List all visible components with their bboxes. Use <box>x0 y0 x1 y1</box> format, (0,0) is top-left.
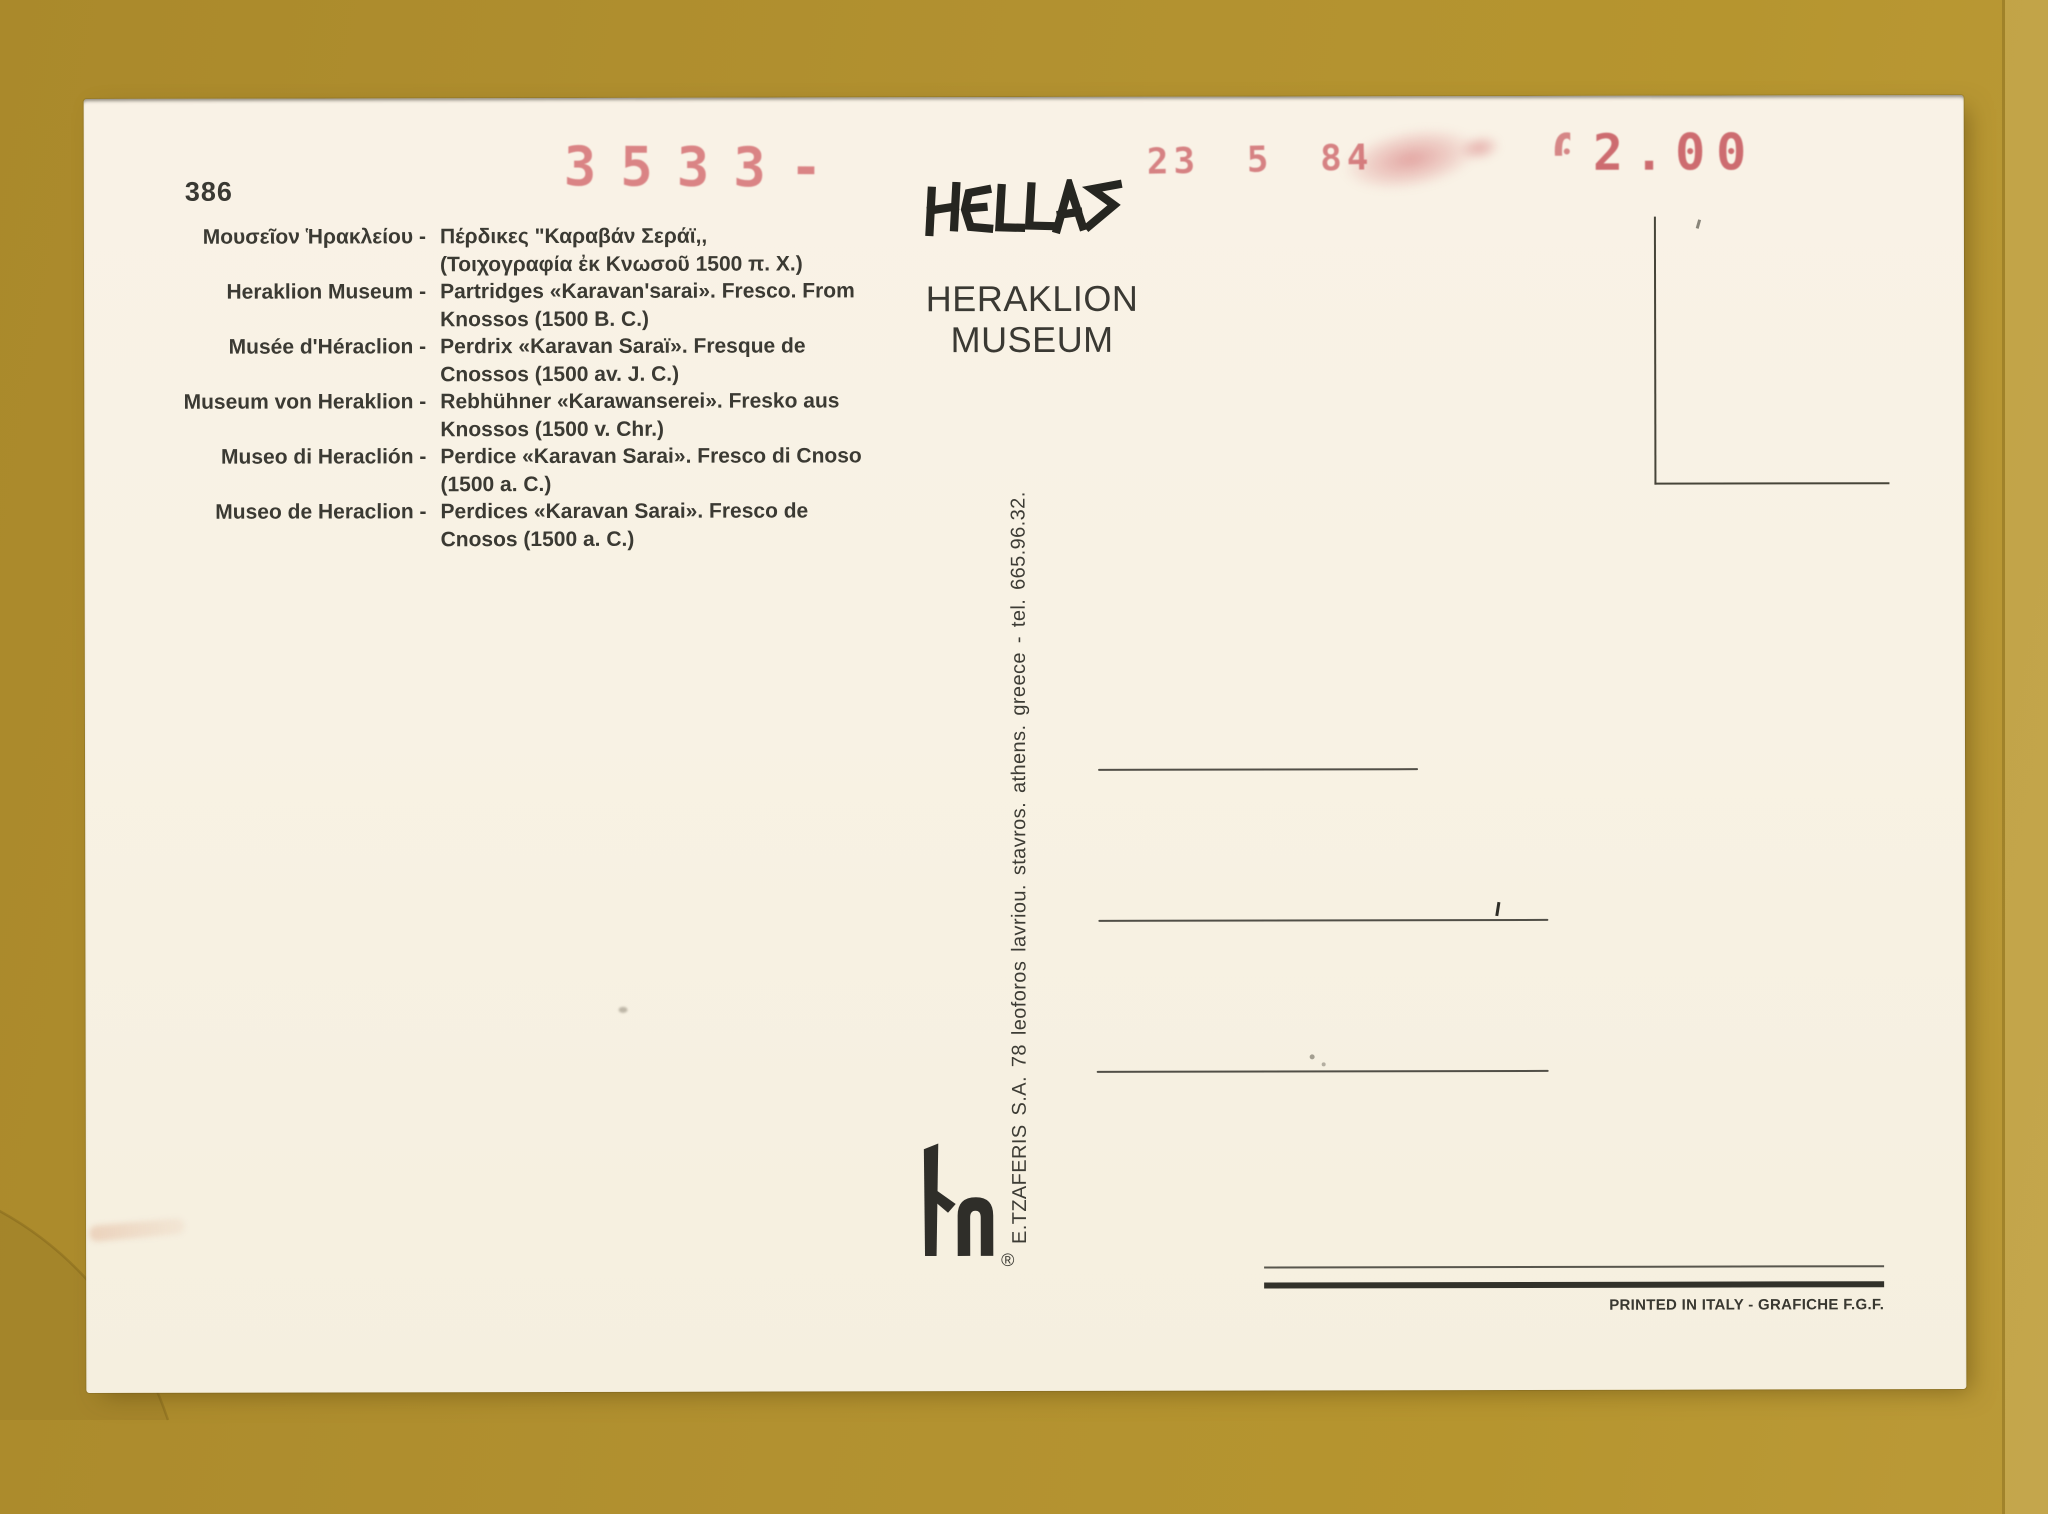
hellas-logo-glyphs <box>923 177 1142 238</box>
meter-serial-stamp: 3533- <box>564 135 847 199</box>
background-light-strip <box>2005 0 2048 1514</box>
caption-description: Perdices «Karavan Sarai». Fresco de Cnos… <box>440 497 920 553</box>
caption-block: Μουσεῖον Ἡρακλείου - Πέρδικες "Καραβάν Σ… <box>111 222 921 554</box>
caption-description: Perdice «Karavan Sarai». Fresco di Cnoso… <box>440 442 920 498</box>
address-line <box>1098 919 1548 922</box>
caption-description: Partridges «Karavan'sarai». Fresco. From… <box>440 277 920 333</box>
paper-speck <box>619 1007 628 1013</box>
caption-label: Heraklion Museum - <box>111 278 426 334</box>
caption-description: Perdrix «Karavan Saraï». Fresque de Cnos… <box>440 332 920 388</box>
hellas-logo: HELLAS <box>923 177 1142 238</box>
caption-description: Rebhühner «Karawanserei». Fresko aus Kno… <box>440 387 920 443</box>
museum-name-line2: MUSEUM <box>919 319 1145 360</box>
print-credit: PRINTED IN ITALY - GRAFICHE F.G.F. <box>1264 1296 1884 1314</box>
red-ink-smudge <box>1338 118 1484 201</box>
museum-name-line1: HERAKLION <box>919 278 1145 319</box>
caption-description: Πέρδικες "Καραβάν Σεράϊ,, (Τοιχογραφία ἐ… <box>440 222 920 278</box>
caption-label: Museum von Heraklion - <box>111 388 426 444</box>
museum-name: HERAKLION MUSEUM <box>919 278 1145 360</box>
ink-speck <box>1322 1062 1326 1066</box>
divider-rule-thin <box>1264 1265 1884 1268</box>
scan-background: 386 Μουσεῖον Ἡρακλείου - Πέρδικες "Καραβ… <box>0 0 2048 1514</box>
stamp-box-corner <box>1654 216 1890 484</box>
postcard-number: 386 <box>185 177 233 208</box>
date-stamp: 23 5 84 <box>1146 137 1373 182</box>
address-line <box>1098 768 1418 771</box>
caption-label: Μουσεῖον Ἡρακλείου - <box>111 223 426 279</box>
registered-trademark-symbol: ® <box>1001 1250 1014 1271</box>
divider-rule-thick <box>1264 1281 1884 1288</box>
paper-stain <box>88 1218 185 1243</box>
meter-value-partial-digit: 0 <box>1552 124 1593 182</box>
ink-speck <box>1310 1054 1315 1059</box>
tzaferis-monogram-logo <box>899 1140 999 1267</box>
meter-value-digits: 2.00 <box>1593 123 1758 181</box>
address-line <box>1097 1070 1549 1073</box>
meter-value-stamp: 02.00 <box>1552 123 1758 181</box>
ink-speck <box>1495 902 1500 916</box>
postcard-back: 386 Μουσεῖον Ἡρακλείου - Πέρδικες "Καραβ… <box>84 95 1967 1393</box>
caption-label: Musée d'Héraclion - <box>111 333 426 389</box>
caption-label: Museo de Heraclion - <box>111 498 426 554</box>
caption-label: Museo di Heraclión - <box>111 443 426 499</box>
publisher-imprint: E.TZAFERIS S.A. 78 leoforos lavriou. sta… <box>1007 404 1032 1244</box>
